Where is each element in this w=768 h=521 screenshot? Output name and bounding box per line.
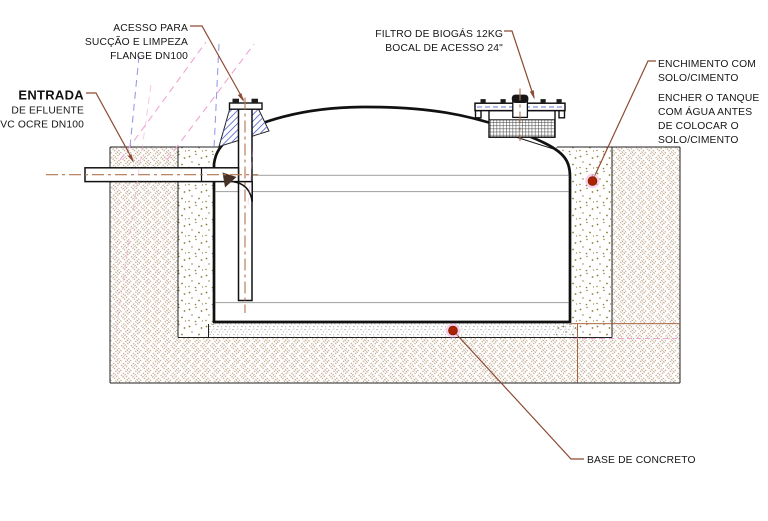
leader-arrowhead-icon — [530, 90, 535, 99]
section-drawing: ACESSO PARA SUCÇÃO E LIMPEZA FLANGE DN10… — [0, 0, 768, 521]
label-access-line2: SUCÇÃO E LIMPEZA — [85, 35, 188, 48]
leader-access — [190, 26, 244, 100]
label-filter-line2: BOCAL DE ACESSO 24" — [385, 43, 503, 54]
label-backfill-line2: SOLO/CIMENTO — [658, 73, 739, 84]
label-inlet-line1: DE EFLUENTE — [11, 106, 84, 117]
plate-bolt — [541, 99, 546, 103]
label-access-line1: ACESSO PARA — [113, 23, 188, 34]
label-filter-line1: FILTRO DE BIOGÁS 12KG — [375, 27, 503, 40]
leader-filter — [504, 31, 534, 98]
drawing-canvas: ACESSO PARA SUCÇÃO E LIMPEZA FLANGE DN10… — [0, 0, 768, 521]
reference-dot-backfill — [588, 177, 597, 186]
tank-shell — [214, 107, 570, 322]
label-inlet-line2: PVC OCRE DN100 — [0, 120, 84, 131]
earth-hatch-bottom — [110, 337, 680, 383]
reference-dot-base — [449, 326, 458, 335]
label-inlet-title: ENTRADA — [18, 88, 84, 103]
label-backfill-line1: ENCHIMENTO COM — [658, 59, 756, 70]
label-waternote-line1: ENCHER O TANQUE — [658, 93, 759, 104]
plate-bolt — [501, 99, 506, 103]
label-waternote-line4: SOLO/CIMENTO — [658, 135, 739, 146]
label-waternote-line3: DE COLOCAR O — [658, 121, 739, 132]
plate-bolt — [557, 99, 562, 103]
concrete-base — [209, 324, 578, 338]
label-waternote-line2: COM ÁGUA ANTES — [658, 105, 752, 118]
flange-bolt — [252, 99, 259, 103]
earth-hatch-right — [612, 147, 680, 337]
plate-bolt — [481, 99, 486, 103]
suction-flange-plate — [230, 99, 263, 110]
flange-bolt — [233, 99, 240, 103]
label-access-line3: FLANGE DN100 — [110, 51, 188, 62]
label-base: BASE DE CONCRETO — [587, 455, 696, 466]
nozzle-mesh — [489, 120, 555, 137]
